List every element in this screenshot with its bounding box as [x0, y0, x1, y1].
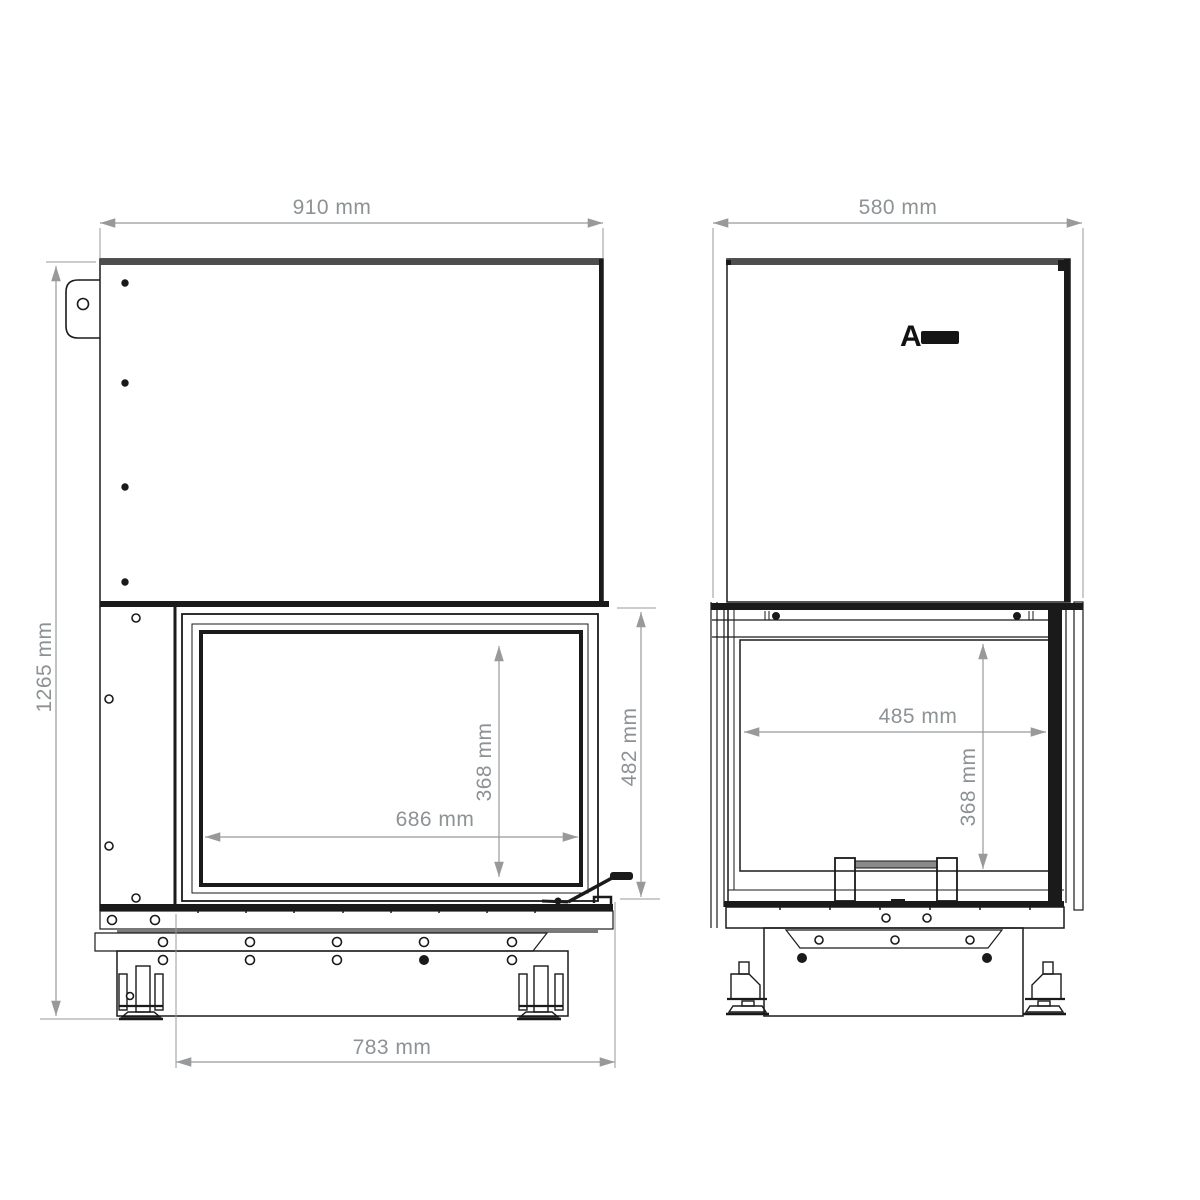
- front-edge: [1064, 259, 1070, 602]
- base-width-label: 783 mm: [353, 1036, 432, 1059]
- front-right-foot: [517, 966, 563, 1019]
- top-bolts: [765, 611, 1033, 620]
- base-width-dimension: 783 mm: [176, 902, 615, 1068]
- side-depth-label: 580 mm: [859, 196, 938, 219]
- firebox-height-dimension: 368 mm: [957, 644, 983, 869]
- firebox-top-bar: [100, 601, 609, 607]
- firebox-chamber: [740, 640, 1054, 871]
- base-plate-holes: [159, 938, 517, 947]
- glass-frame: [201, 632, 581, 885]
- firebox-top-bar: [711, 603, 1083, 610]
- base-bracket-holes: [815, 936, 974, 944]
- technical-drawing-canvas: 910 mm 1265 mm: [0, 0, 1200, 1200]
- corner-block: [1058, 260, 1069, 271]
- base-box-holes: [159, 956, 517, 965]
- front-upper-panel: [66, 259, 603, 606]
- door-side-band: [1048, 610, 1062, 903]
- firebox-bottom-bar: [100, 904, 613, 911]
- base-box: [117, 951, 568, 1016]
- brand-logo-letter: A: [900, 320, 922, 353]
- door-frame: [182, 614, 598, 901]
- top-edge-band: [100, 259, 603, 265]
- firebox-height-label: 368 mm: [957, 748, 980, 827]
- side-upper-panel: A: [726, 259, 1070, 602]
- brand-wordmark: [921, 331, 959, 344]
- column-bolt-holes: [105, 614, 140, 902]
- panel-rivets: [122, 280, 128, 585]
- glass-width-label: 686 mm: [396, 808, 475, 831]
- side-depth-dimension: 580 mm: [713, 196, 1083, 598]
- door-height-dimension: 482 mm: [617, 608, 660, 899]
- fireplace-dimension-drawing: 910 mm 1265 mm: [0, 0, 1200, 1200]
- side-base: [726, 907, 1066, 1016]
- side-left-foot: [726, 962, 769, 1014]
- front-firebox: [100, 601, 633, 913]
- mounting-tab: [66, 280, 100, 338]
- front-height-label: 1265 mm: [33, 621, 56, 712]
- side-view: 580 mm A: [711, 196, 1083, 1016]
- glass-width-dimension: 686 mm: [205, 808, 578, 837]
- glass-height-label: 368 mm: [473, 723, 496, 802]
- brand-logo: A: [900, 320, 959, 353]
- front-base: [95, 911, 613, 1019]
- side-firebox: [711, 602, 1083, 928]
- firebox-depth-label: 485 mm: [879, 705, 958, 728]
- glass-height-dimension: 368 mm: [473, 646, 499, 877]
- front-width-label: 910 mm: [293, 196, 372, 219]
- handle-bracket: [835, 858, 957, 904]
- front-width-dimension: 910 mm: [100, 196, 603, 258]
- base-strip: [100, 911, 613, 929]
- handle-knob: [610, 872, 633, 880]
- side-right-foot: [1023, 962, 1066, 1014]
- right-edge: [599, 259, 603, 606]
- base-strip: [726, 907, 1064, 928]
- door-face-slab: [1074, 602, 1083, 910]
- door-height-label: 482 mm: [618, 708, 641, 787]
- firebox-depth-dimension: 485 mm: [744, 705, 1046, 732]
- front-view: 910 mm 1265 mm: [33, 196, 660, 1068]
- front-left-foot: [119, 966, 163, 1019]
